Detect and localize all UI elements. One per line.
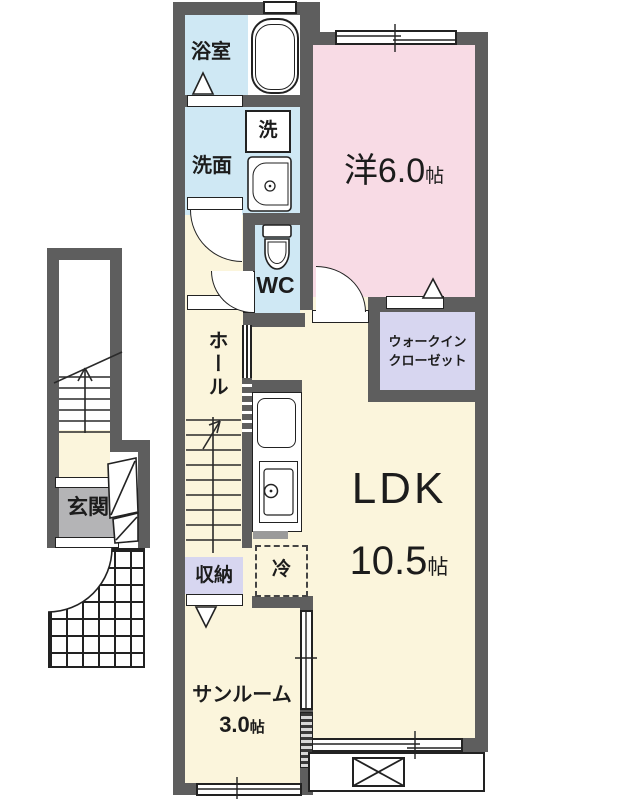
window-bath-vent bbox=[263, 1, 297, 14]
label-wc: WC bbox=[248, 272, 303, 298]
railing-solid bbox=[242, 432, 252, 548]
floor-plan: 浴室 洗 洗面 WC 洋6.0帖 ウォークイン クローゼット ホール 玄関 収納… bbox=[0, 0, 633, 800]
kitchen-shelf bbox=[253, 531, 288, 539]
label-storage: 収納 bbox=[185, 565, 243, 587]
wall-top-bath bbox=[173, 2, 320, 15]
wall-wic-bottom bbox=[368, 390, 488, 402]
window-bedroom-top bbox=[335, 30, 457, 45]
wall-stairs-left bbox=[47, 248, 59, 548]
wall-bedroom-left bbox=[300, 15, 313, 310]
railing-hatched bbox=[242, 378, 252, 432]
wic-entry-bar bbox=[386, 296, 444, 309]
storage-door-bar bbox=[186, 594, 243, 606]
wall-stairs-right bbox=[110, 260, 122, 442]
wall-wc-left bbox=[243, 213, 255, 275]
label-sunroom: サンルーム bbox=[185, 684, 299, 707]
window-sunroom-side bbox=[300, 610, 313, 710]
bath-entry-step bbox=[187, 95, 243, 107]
wall-genkan-right bbox=[138, 452, 150, 548]
bedroom-unit: 帖 bbox=[425, 166, 444, 187]
kitchen-sink-unit bbox=[259, 461, 298, 523]
pocket-door-track-line bbox=[246, 325, 248, 378]
label-ldk-size: 10.5帖 bbox=[324, 538, 474, 584]
label-genkan: 玄関 bbox=[60, 496, 116, 520]
sunroom-unit: 帖 bbox=[250, 719, 265, 736]
wall-genkan-jut bbox=[110, 440, 150, 452]
wall-ldk-bottom-right bbox=[463, 738, 488, 752]
wic-line1: ウォークイン bbox=[388, 334, 466, 349]
washroom-door-leaf bbox=[187, 197, 243, 210]
label-washer: 洗 bbox=[245, 120, 291, 142]
sunroom-size: 3.0 bbox=[219, 712, 250, 737]
genkan-step-upper bbox=[55, 477, 118, 488]
label-bedroom: 洋6.0帖 bbox=[324, 152, 464, 191]
stove bbox=[257, 398, 296, 448]
entrance-porch-tiles bbox=[48, 548, 145, 668]
wall-wc-bottom bbox=[243, 313, 305, 327]
wic-line2: クローゼット bbox=[388, 353, 466, 368]
balcony-equipment-box bbox=[352, 757, 405, 787]
label-hall: ホール bbox=[199, 318, 227, 410]
wall-left bbox=[173, 2, 185, 795]
ldk-size: 10.5 bbox=[350, 539, 428, 583]
ldk-unit: 帖 bbox=[427, 556, 448, 579]
label-refrigerator: 冷 bbox=[255, 559, 308, 581]
window-sunroom-bottom bbox=[196, 783, 302, 796]
label-washroom: 洗面 bbox=[183, 155, 241, 178]
label-ldk: LDK bbox=[324, 464, 474, 515]
bathtub-inner bbox=[255, 24, 295, 90]
genkan-step-lower bbox=[55, 537, 119, 548]
label-sunroom-size: 3.0帖 bbox=[185, 712, 299, 737]
bedroom-size: 洋6.0 bbox=[344, 152, 425, 190]
floor-wc bbox=[255, 225, 300, 313]
label-wic: ウォークイン クローゼット bbox=[378, 333, 477, 371]
label-bathroom: 浴室 bbox=[183, 41, 239, 64]
window-ldk-bottom bbox=[310, 738, 463, 752]
